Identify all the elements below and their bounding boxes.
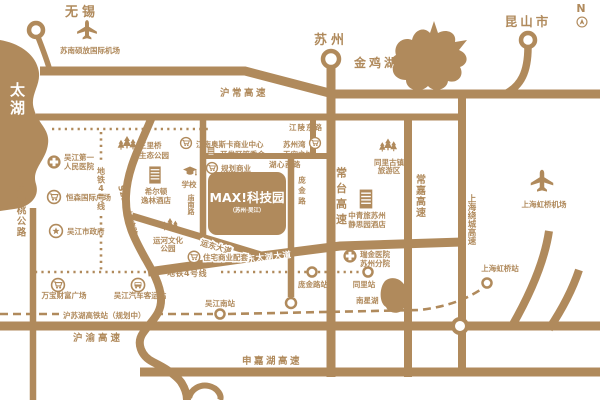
interchange-ring	[453, 319, 467, 333]
suzhentao-label: 苏震桃公路	[15, 182, 28, 238]
pangjin-station-label: 庞金路站	[298, 279, 328, 289]
poi-label: 苏州湾	[283, 139, 306, 149]
changjia-label: 常嘉高速	[414, 173, 427, 218]
building-icon	[208, 147, 215, 157]
city-marker-suzhou	[323, 51, 339, 67]
poi-label: 旅游区	[378, 165, 401, 175]
poi-wujiang-hospital: 吴江第一 人民医院	[47, 152, 94, 171]
shopping-cart-icon	[188, 251, 200, 263]
poi-label: 苏州分院	[360, 258, 390, 268]
poi-wujiang-government: 吴江市政府	[50, 225, 105, 238]
shopping-cart-icon	[52, 279, 65, 292]
shopping-cart-icon	[310, 138, 321, 149]
hospital-cross-icon	[47, 155, 60, 168]
hospital-cross-icon	[343, 249, 356, 262]
jinjihu-label: 金鸡湖	[353, 55, 399, 70]
poi-label: 天空之城	[283, 149, 313, 159]
poi-label: 恒森国际广场	[66, 192, 111, 202]
poi-cyts-hotel: 中青旅苏州 静思园酒店	[348, 190, 386, 229]
poi-ruijin-hospital: 瑞金医院 苏州分院	[343, 249, 390, 268]
compass: N	[576, 2, 587, 27]
road-southeast-curve-2	[549, 270, 579, 329]
road-southeast-curve-1	[512, 231, 549, 326]
bus-icon	[131, 278, 144, 291]
poi-label: 逸林酒店	[141, 195, 171, 205]
city-marker-wuxi	[29, 23, 43, 37]
star-icon	[50, 225, 63, 238]
s227-label: S227 快速路	[115, 184, 139, 238]
poi-hilton-hotel: 希尔顿 逸林酒店	[141, 166, 171, 205]
location-map: 太湖 金鸡湖 南星湖	[0, 0, 600, 400]
poi-label: 吴江汽车客运站	[114, 290, 167, 300]
airplane-icon	[77, 20, 97, 39]
graduation-cap-icon	[183, 167, 197, 176]
poi-label: 学校	[182, 179, 197, 189]
poi-tongli-ancient-town: 同里古镇 旅游区	[374, 139, 404, 176]
miaonan-label: 庙南路	[187, 193, 196, 216]
project-block: MAX!科技园 （苏州·吴江）	[208, 172, 286, 235]
wuxi-label: 无锡	[64, 4, 99, 20]
poi-label: 静思园酒店	[348, 219, 386, 229]
compass-n-label: N	[576, 2, 585, 15]
poi-guihua-shangye: 规划商业	[207, 163, 252, 174]
poi-label: 万宝财富广场	[41, 290, 87, 300]
jinji-lake: 金鸡湖	[353, 21, 467, 90]
road-wuxi-stem	[38, 37, 50, 71]
building-icon	[360, 190, 373, 209]
project-sub-label: （苏州·吴江）	[229, 206, 264, 214]
wujiangnan-station-label: 吴江南站	[205, 298, 235, 308]
station-marker-tongli	[364, 268, 373, 277]
poi-label: 公园	[161, 244, 176, 253]
poi-label: 中青旅苏州	[348, 210, 386, 220]
road-s227-ramp-loop	[189, 386, 221, 400]
poi-label: 瑞金医院	[360, 249, 390, 259]
station-marker-hongqiao	[483, 279, 492, 288]
poi-label: 住宅商业配套	[203, 252, 248, 262]
road-end-marker	[286, 298, 296, 308]
poi-label: 规划商业	[221, 163, 251, 173]
shopping-cart-icon	[181, 138, 192, 149]
city-marker-kunshan	[521, 33, 535, 47]
metro4-vertical-label: 地铁4号线	[97, 166, 106, 211]
sunan-airport-label: 苏南硕放国际机场	[60, 45, 120, 55]
hongqiao-airport-label: 上海虹桥机场	[522, 199, 567, 209]
trees-icon	[379, 139, 397, 152]
station-marker-pangjin	[308, 268, 317, 277]
poi-label: 开发区管委会	[220, 149, 265, 159]
poi-sunan-airport: 苏南硕放国际机场	[60, 20, 120, 55]
kunshan-label: 昆山市	[505, 14, 552, 29]
compass-icon	[577, 17, 587, 27]
station-marker-wujiangnan	[216, 310, 225, 319]
poi-label: 三里桥	[139, 140, 162, 150]
pangjin-label: 庞金路	[297, 175, 306, 208]
huchang-label: 沪常高速	[220, 87, 268, 99]
shenjiahu-label: 申嘉湖高速	[242, 355, 302, 367]
raocheng-label: 上海绕城高速	[466, 193, 476, 246]
poi-wanbao-plaza: 万宝财富广场	[41, 279, 87, 300]
poi-label: 吴江市政府	[67, 226, 105, 236]
poi-label: 人民医院	[64, 161, 94, 171]
poi-label: 生态公园	[139, 150, 169, 160]
huxin-label: 湖心西路	[269, 159, 301, 169]
poi-hongqiao-airport: 上海虹桥机场	[522, 170, 567, 209]
poi-hengsen-plaza: 恒森国际广场	[48, 191, 112, 204]
poi-aosika-center: 江南奥斯卡商业中心	[181, 138, 264, 149]
nanxinghu-label: 南星湖	[356, 295, 379, 305]
road-kunshan-stem	[505, 47, 528, 94]
poi-label: 江南奥斯卡商业中心	[196, 139, 264, 149]
project-logo: MAX!科技园	[210, 190, 285, 205]
changtai-label: 常台高速	[335, 166, 348, 229]
poi-label: 吴江第一	[64, 152, 94, 162]
metro4-horizontal-label: 地铁4号线	[167, 268, 207, 278]
huyu-label: 沪渝高速	[73, 332, 123, 344]
tongli-station-label: 同里站	[353, 279, 376, 289]
airplane-icon	[531, 170, 554, 192]
building-icon	[149, 166, 160, 183]
shopping-cart-icon	[48, 191, 61, 204]
shopping-cart-icon	[207, 163, 218, 174]
trees-icon	[118, 136, 137, 150]
poi-zhuzhai-peitao: 住宅商业配套	[188, 251, 248, 263]
jiangling-label: 江陵东路	[289, 122, 323, 132]
poi-school: 学校	[182, 167, 198, 190]
taihu-label: 太湖	[8, 81, 26, 118]
hongqiao-station-label: 上海虹桥站	[481, 263, 519, 273]
hsr-label: 沪苏湖高铁站（规划中）	[63, 310, 146, 320]
suzhou-label: 苏州	[314, 32, 348, 48]
poi-label: 希尔顿	[145, 186, 168, 196]
